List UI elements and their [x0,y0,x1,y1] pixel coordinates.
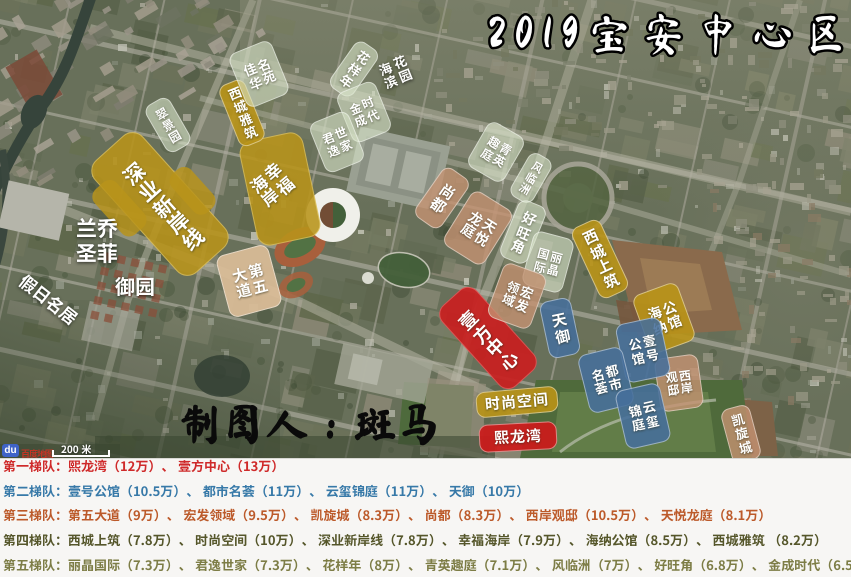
svg-text:2019宝安中心区: 2019宝安中心区 [488,12,851,56]
